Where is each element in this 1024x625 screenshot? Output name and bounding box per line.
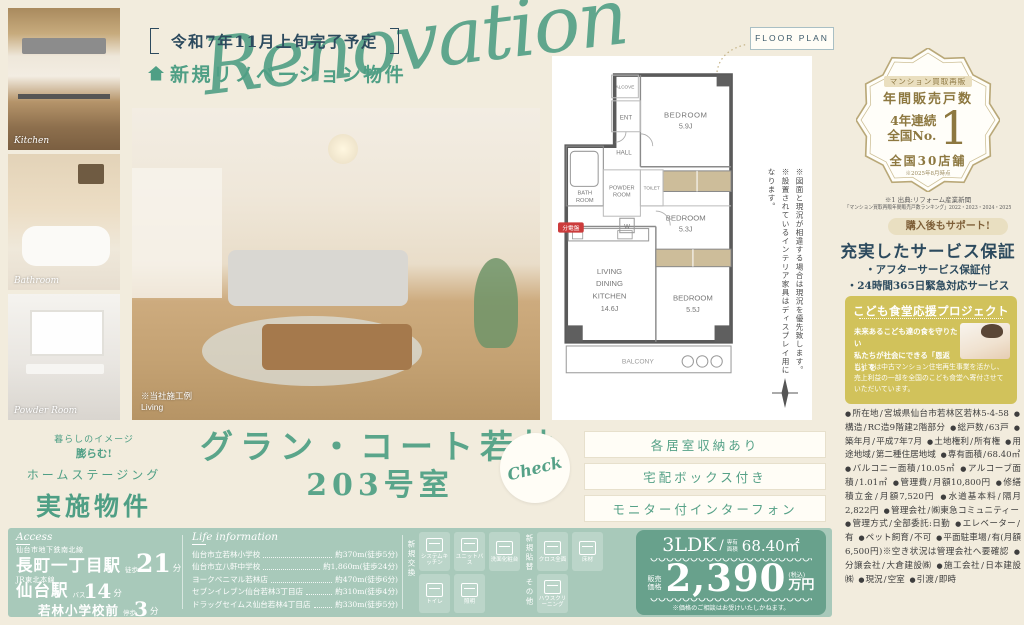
equipment-group1-row1: システムキッチンユニットバス洗面化粧台 (419, 532, 520, 571)
bullet: ● (936, 534, 942, 542)
photo-shape (22, 38, 106, 54)
separator: / (985, 423, 988, 433)
photo-shape (262, 324, 412, 370)
staging-line2: 実施物件 (12, 487, 176, 523)
bedroom1-size: 5.9J (679, 122, 693, 131)
support-items: ・アフターサービス保証付・24時間365日緊急対応サービス (836, 262, 1020, 294)
bullet: ● (1014, 548, 1020, 556)
price-tax-unit: (税込) 万円 (788, 572, 814, 593)
detail-label: 所在地 (852, 409, 879, 419)
living-caption-label: Living (141, 402, 163, 412)
separator: / (988, 533, 991, 543)
photo-shape (78, 164, 104, 184)
separator: / (884, 575, 887, 585)
separator: / (981, 561, 984, 571)
feature-label: モニター付インターフォン (612, 499, 797, 518)
equipment-label: ユニットバス (455, 554, 485, 566)
detail-value: 不可 (914, 533, 931, 543)
unit-bath-icon (461, 538, 478, 552)
access-station: 長町一丁目駅 (16, 557, 121, 575)
dotted-connector (714, 40, 752, 74)
equipment-item: クロス全面 (537, 532, 568, 571)
bullet: ● (858, 576, 864, 584)
equipment-item: ハウスクリーニング (537, 574, 568, 613)
price-note: ※価格のご相談はお受けいたしかねます。 (636, 603, 826, 612)
life-row: セブンイレブン仙台若林3丁目店 約310m(徒歩4分) (192, 585, 398, 598)
equipment-group1-row2: トイレ照明 (419, 574, 485, 613)
equipment-label: トイレ (420, 599, 450, 605)
photo-shape (18, 94, 110, 99)
detail-label: 施工会社 (944, 561, 980, 571)
powder-room-label: POWDER (609, 185, 634, 191)
equipment-group2-label: 新規貼替 (524, 534, 535, 572)
detail-value: 1.01㎡ (859, 478, 888, 488)
kitchen-photo: Kitchen (8, 8, 120, 150)
bullet: ● (1014, 424, 1020, 432)
feature-list: 各居室収納あり宅配ボックス付きモニター付インターフォン (584, 431, 826, 522)
access-route2: 仙台駅 バス 14 分 (16, 582, 122, 600)
detail-label: 土地権利 (934, 437, 969, 447)
facility-distance: 約1,860m(徒歩24分) (323, 561, 398, 572)
home-staging-block: 暮らしのイメージ 膨らむ! ホームステージング 実施物件 (12, 432, 176, 523)
detail-item: ●ペット飼育/不可 (858, 533, 934, 543)
light-icon (461, 583, 478, 597)
area-label: 専有面積 (727, 540, 739, 553)
bedroom3-size: 5.5J (686, 305, 700, 314)
bathroom-photo: Bathroom (8, 154, 120, 290)
access-mode: 停歩 (123, 610, 131, 617)
access-unit: 分 (173, 562, 182, 574)
bullet: ● (884, 507, 890, 515)
equipment-label: システムキッチン (420, 554, 450, 566)
divider (182, 535, 183, 609)
bullet: ● (858, 534, 864, 542)
facility-name: セブンイレブン仙台若林3丁目店 (192, 586, 303, 597)
life-row: 仙台市立八軒中学校 約1,860m(徒歩24分) (192, 560, 398, 573)
award-category-text: マンション買取再販 (884, 76, 973, 87)
feature-item: 宅配ボックス付き (584, 463, 826, 490)
floor-plan-notes: ※図面と現況が相違する場合は現況を優先致します。 ※設置されているインテリア家具… (764, 168, 806, 382)
life-row: 仙台市立若林小学校 約370m(徒歩5分) (192, 547, 398, 560)
separator: / (910, 533, 913, 543)
check-stamp: Check (500, 433, 570, 503)
bracket-left (150, 28, 159, 54)
separator: / (875, 492, 878, 502)
living-photo: ※当社施工例 Living (132, 108, 540, 420)
access-minutes: 21 (136, 553, 171, 575)
detail-value: 宮城県仙台市若林区若林5-4-58 (884, 409, 1009, 419)
award-main-lines: 4年連続 全国No. (887, 113, 936, 143)
equipment-group3-row: ハウスクリーニング (537, 574, 568, 613)
divider (402, 535, 403, 609)
equipment-group3-label: その他 (524, 578, 535, 607)
detail-value: 即時 (939, 575, 956, 585)
washer-label: W (624, 224, 630, 231)
feature-label: 各居室収納あり (651, 435, 760, 454)
support-item: ・アフターサービス保証付 (836, 262, 1020, 278)
floor-plan-note-2: ※設置されているインテリア家具はディスプレイ用になります。 (764, 168, 792, 382)
support-title: 充実したサービス保証 (836, 238, 1020, 262)
life-row: ドラッグセイムス仙台若林4丁目店 約330m(徒歩5分) (192, 597, 398, 610)
floor-plan-drawing: BALCONY BEDROOM 5.9J BEDROOM 5.3J BEDROO… (558, 72, 764, 381)
breaker-label: 分電盤 (562, 224, 579, 232)
living-caption-note: ※当社施工例 (141, 391, 192, 401)
life-information-list: 仙台市立若林小学校 約370m(徒歩5分) 仙台市立八軒中学校 約1,860m(… (192, 547, 398, 610)
flooring-icon (579, 541, 596, 555)
facility-name: ヨークベニマル若林店 (192, 574, 268, 585)
detail-item: ●土地権利/所有権 (927, 437, 1003, 447)
detail-label: エレベーター (963, 519, 1017, 529)
property-type: 新規リノベーション物件 (148, 60, 406, 87)
wallpaper-icon (544, 541, 561, 555)
detail-item: ●管理費/月額10,800円 (893, 478, 994, 488)
photo-shape (132, 168, 222, 298)
equipment-group2-row: クロス全面床材 (537, 532, 603, 571)
divider (859, 318, 1003, 319)
detail-value: RC造9階建2階部分 (868, 423, 946, 433)
detail-label: 管理方式 (852, 519, 888, 529)
detail-value: 第二種住居地域 (876, 450, 936, 460)
bullet: ● (893, 479, 900, 487)
dotted-leader (263, 557, 332, 558)
facility-name: ドラッグセイムス仙台若林4丁目店 (192, 599, 311, 610)
bullet: ● (996, 479, 1003, 487)
equipment-label: クロス全面 (538, 557, 568, 563)
facility-distance: 約310m(徒歩4分) (335, 586, 398, 597)
bullet: ● (940, 493, 947, 501)
detail-label: 水道基本料 (949, 492, 997, 502)
support-badge: 購入後もサポート! (888, 218, 1008, 235)
detail-item: ●現況/空室 (858, 575, 907, 585)
detail-label: 管理会社 (891, 506, 926, 516)
balcony-label: BALCONY (622, 358, 655, 365)
access-minutes: 14 (84, 582, 112, 600)
detail-item: ●専有面積/68.40㎡ (941, 450, 1021, 460)
bedroom2-label: BEDROOM (666, 213, 706, 222)
access-station: 仙台駅 (16, 582, 69, 600)
detail-label: ペット飼育 (866, 533, 909, 543)
detail-label: 構造 (845, 423, 863, 433)
detail-item: ●管理会社/㈱東急コミュニティー (884, 506, 1019, 516)
floor-plan-note-1: ※図面と現況が相違する場合は現況を優先致します。 (792, 168, 806, 382)
award-source-line2: 「マンション買取再販年間販売戸数ランキング」2022・2023・2024・202… (844, 203, 1013, 211)
separator: / (1017, 519, 1020, 529)
detail-item: ●総戸数/63戸 (950, 423, 1012, 433)
hall-label: HALL (616, 149, 632, 156)
alcove-label: ALCOVE (616, 84, 635, 89)
feature-item: 各居室収納あり (584, 431, 826, 458)
kodomo-title: こども食堂応援プロジェクト (845, 303, 1017, 319)
entrance-label: ENT (620, 114, 633, 121)
price-label: 販売価格 (648, 575, 664, 591)
system-kitchen-icon (426, 538, 443, 552)
price-line: 販売価格 2,390 (税込) 万円 (636, 562, 826, 595)
detail-value: 全部委託:日勤 (893, 519, 950, 529)
access-heading: Access (16, 531, 52, 545)
equipment-item: 照明 (454, 574, 485, 613)
house-cleaning-icon (544, 580, 561, 594)
photo-shape (228, 250, 408, 306)
property-details: ●所在地/宮城県仙台市若林区若林5-4-58 ●構造/RC造9階建2階部分 ●総… (845, 408, 1021, 587)
access-stop: 若林小学校前 (38, 604, 119, 618)
facility-name: 仙台市立若林小学校 (192, 549, 260, 560)
powder-room-photo: Powder Room (8, 294, 120, 420)
equipment-label: 照明 (455, 599, 485, 605)
kodomo-body: 当社では中古マンション住宅再生事業を活かし、売上利益の一部を全国のこども食堂へ寄… (854, 362, 1009, 395)
floor-plan-tag: FLOOR PLAN (750, 27, 834, 50)
award-badge: マンション買取再販 年間販売戸数 4年連続 全国No. 1 全国30店舗 ※20… (856, 48, 1000, 192)
equipment-item: トイレ (419, 574, 450, 613)
bullet: ● (955, 520, 961, 528)
price-box: 3LDK / 専有面積 68.40㎡ 販売価格 2,390 (税込) 万円 ※価… (636, 530, 826, 615)
detail-label: 分譲会社 (845, 561, 881, 571)
detail-item: ●管理方式/全部委託:日勤 (845, 519, 953, 529)
detail-item: ●所在地/宮城県仙台市若林区若林5-4-58 (845, 409, 1012, 419)
check-text: Check (506, 452, 564, 484)
detail-label: 管理費 (900, 478, 927, 488)
separator: / (882, 561, 885, 571)
separator: / (983, 450, 986, 460)
bathroom-label: ROOM (576, 198, 594, 204)
toilet-label: TOILET (644, 185, 660, 190)
detail-item: ●バルコニー面積/10.05㎡ (845, 464, 958, 474)
powder-room-label: ROOM (613, 193, 631, 199)
bullet: ● (937, 562, 944, 570)
detail-label: 平面駐車場 (943, 533, 986, 543)
access-mode: 徒歩 (125, 567, 133, 574)
wavy-divider (650, 598, 812, 602)
compass-icon (770, 378, 800, 408)
detail-value: 大倉建設㈱ (886, 561, 931, 571)
flyer-page: Kitchen Bathroom Powder Room 令和7年11月上旬完了… (0, 0, 1024, 625)
kodomo-lead-line1: 未来あるこども達の食を守りたい (854, 327, 957, 348)
layout-text: 3LDK (662, 535, 716, 555)
bullet: ● (845, 410, 851, 418)
separator: / (970, 437, 973, 447)
detail-value: 平成7年7月 (876, 437, 922, 447)
property-type-text: 新規リノベーション物件 (170, 60, 406, 87)
house-icon (148, 66, 164, 81)
photo-shape (26, 364, 104, 374)
detail-value: 月額7,520円 (879, 492, 935, 502)
detail-value: 63戸 (989, 423, 1009, 433)
facility-name: 仙台市立八軒中学校 (192, 561, 260, 572)
award-asof: ※2025年8月時点 (856, 169, 1000, 177)
bracket-right (390, 28, 399, 54)
facility-distance: 約470m(徒歩6分) (335, 574, 398, 585)
access-route3: 若林小学校前 停歩 3 分 (38, 600, 158, 618)
bullet: ● (1005, 438, 1011, 446)
equipment-group1-label: 新規交換 (406, 540, 417, 578)
detail-label: 築年月 (845, 437, 871, 447)
completion-date: 令和7年11月上旬完了予定 (150, 28, 399, 54)
staging-line1: ホームステージング (12, 466, 176, 483)
separator: / (889, 519, 892, 529)
detail-label: 総戸数 (958, 423, 984, 433)
bullet: ● (927, 438, 933, 446)
equipment-item: ユニットバス (454, 532, 485, 571)
bullet: ● (950, 424, 956, 432)
award-main-line2: 全国No. (887, 128, 936, 143)
price-amount: 2,390 (666, 562, 787, 595)
detail-item: ●引渡/即時 (910, 575, 956, 585)
equipment-label: 洗面化粧台 (490, 557, 520, 563)
area-value: 68.40㎡ (742, 538, 800, 555)
detail-label: 現況 (865, 575, 882, 585)
photo-shape (22, 226, 110, 266)
bullet: ● (845, 465, 852, 473)
separator: / (872, 437, 875, 447)
feature-label: 宅配ボックス付き (643, 467, 767, 486)
floor-plan-panel: BALCONY BEDROOM 5.9J BEDROOM 5.3J BEDROO… (552, 56, 812, 420)
vanity-icon (496, 541, 513, 555)
award-main-line1: 4年連続 (890, 113, 936, 128)
layout-area-line: 3LDK / 専有面積 68.40㎡ (636, 535, 826, 555)
bullet: ● (910, 576, 916, 584)
separator: / (935, 575, 938, 585)
ldk-label: DINING (596, 279, 623, 288)
dotted-leader (306, 594, 332, 595)
bathroom-label: BATH (577, 191, 592, 197)
detail-value: 所有権 (974, 437, 1000, 447)
bedroom1-label: BEDROOM (664, 110, 708, 119)
dotted-leader (271, 582, 332, 583)
separator: / (872, 450, 875, 460)
access-mode: バス (73, 592, 81, 599)
separator: / (719, 537, 723, 555)
photo-shape (474, 258, 518, 348)
access-route1: 長町一丁目駅 徒歩 21 分 (16, 553, 181, 575)
staging-arc-text2: 膨らむ! (12, 446, 176, 461)
ldk-label: LIVING (597, 267, 622, 276)
bullet: ● (1014, 410, 1020, 418)
detail-label: バルコニー面積 (853, 464, 916, 474)
facility-distance: 約370m(徒歩5分) (335, 549, 398, 560)
access-unit: 分 (150, 605, 159, 617)
separator: / (998, 492, 1001, 502)
toilet-icon (426, 583, 443, 597)
separator: / (864, 423, 867, 433)
photo-shape (981, 324, 1003, 338)
kodomo-shokudo-box: こども食堂応援プロジェクト 未来あるこども達の食を守りたい 私たちが社会にできる… (845, 296, 1017, 404)
photo-label: Kitchen (14, 136, 49, 146)
facility-distance: 約330m(徒歩5分) (335, 599, 398, 610)
detail-value: 10.05㎡ (921, 464, 955, 474)
equipment-item: 床材 (572, 532, 603, 571)
award-stores: 全国30店舗 (856, 152, 1000, 169)
bedroom2-size: 5.3J (679, 225, 693, 234)
ldk-label: KITCHEN (593, 292, 627, 301)
photo-shape (328, 134, 358, 164)
equipment-label: 床材 (573, 557, 603, 563)
award-main: 4年連続 全国No. 1 (856, 106, 1000, 150)
detail-label: 専有面積 (948, 450, 982, 460)
detail-label: 引渡 (917, 575, 934, 585)
detail-value: 有 (845, 533, 854, 543)
bottom-band: Access 仙台市地下鉄南北線 長町一丁目駅 徒歩 21 分 JR東北本線 仙… (8, 528, 832, 617)
feature-item: モニター付インターフォン (584, 495, 826, 522)
separator: / (855, 478, 858, 488)
dotted-leader (263, 569, 320, 570)
separator: / (917, 464, 920, 474)
completion-text: 令和7年11月上旬完了予定 (159, 28, 390, 54)
ldk-size: 14.6J (601, 304, 619, 313)
separator: / (880, 409, 883, 419)
photo-label: Powder Room (14, 406, 77, 416)
detail-value: ㈱東急コミュニティー (931, 506, 1019, 516)
staging-arc-text: 暮らしのイメージ (12, 432, 176, 445)
bullet: ● (845, 520, 851, 528)
equipment-item: 洗面化粧台 (489, 532, 520, 571)
support-item: ・24時間365日緊急対応サービス (836, 278, 1020, 294)
photo-label: Bathroom (14, 276, 59, 286)
access-unit: 分 (113, 587, 122, 599)
access-minutes: 3 (134, 600, 148, 618)
separator: / (927, 506, 930, 516)
award-number: 1 (939, 106, 968, 150)
detail-value: 月額10,800円 (932, 478, 990, 488)
photo-shape (30, 310, 104, 356)
equipment-item: システムキッチン (419, 532, 450, 571)
detail-value: 空室 (888, 575, 905, 585)
bedroom3-label: BEDROOM (673, 294, 713, 303)
price-unit: 万円 (788, 579, 814, 593)
life-heading: Life information (192, 531, 278, 545)
bullet: ● (960, 465, 967, 473)
equipment-label: ハウスクリーニング (538, 596, 568, 608)
dotted-leader (314, 607, 333, 608)
award-category: マンション買取再販 (856, 76, 1000, 87)
life-row: ヨークベニマル若林店 約470m(徒歩6分) (192, 572, 398, 585)
award-subtitle: 年間販売戸数 (856, 88, 1000, 107)
detail-value: 68.40㎡ (987, 450, 1020, 460)
bullet: ● (941, 451, 947, 459)
living-caption: ※当社施工例 Living (141, 391, 192, 413)
